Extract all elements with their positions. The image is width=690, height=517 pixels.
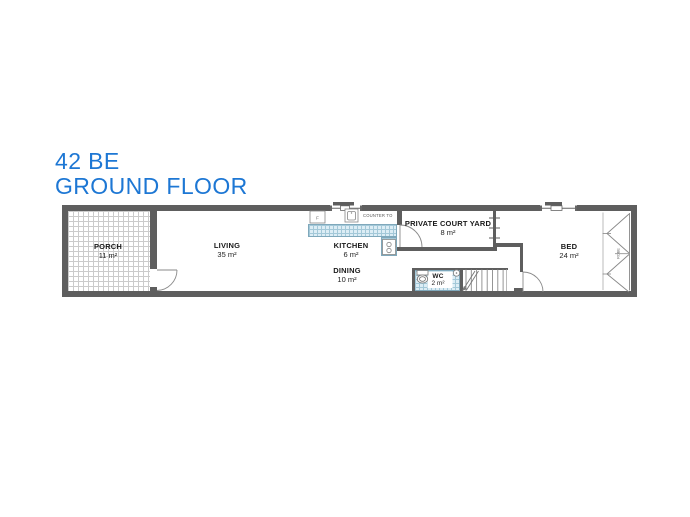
kitchen-counter-side [381,237,397,256]
kitchen-name: KITCHEN [334,241,369,250]
living-name: LIVING [214,241,240,250]
porch-name: PORCH [94,242,122,251]
fridge-label: F [316,216,319,221]
room-label-courtyard: PRIVATE COURT YARD 8 m² [405,219,491,237]
floor-plan: F COUNTER TO [62,205,637,297]
floor-plan-page: 42 BE GROUND FLOOR [0,0,690,517]
courtyard-name: PRIVATE COURT YARD [405,219,491,228]
living-area: 35 m² [214,250,240,259]
wc-area: 2 m² [432,280,445,287]
wall-bed-upper [493,243,523,247]
room-label-living: LIVING 35 m² [214,241,240,259]
title-line1: 42 BE [55,149,248,174]
wall-courtyard-right [493,211,496,243]
room-label-porch: PORCH 11 m² [94,242,122,260]
bed-name: BED [559,242,578,251]
robe-label: ROBE [617,248,621,259]
dining-area: 10 m² [333,275,360,284]
dining-name: DINING [333,266,360,275]
porch-door-icon [157,270,177,291]
wall-wc-right [460,268,463,291]
wall-stub-bed-door [514,288,523,291]
wc-name: WC [432,273,445,280]
room-label-kitchen: KITCHEN 6 m² [334,241,369,259]
bed-door-icon [523,272,543,292]
courtyard-area: 8 m² [405,228,491,237]
wall-courtyard-bottom [397,247,497,251]
wall-porch-living [150,211,157,269]
bed-window-icon [540,202,577,212]
bed-area: 24 m² [559,251,578,260]
staircase-icon [462,270,507,292]
kitchen-area: 6 m² [334,250,369,259]
wall-wc-left [412,268,415,291]
wall-bed-left [520,247,523,272]
fridge-icon: F [310,211,325,223]
room-label-wc: WC 2 m² [432,273,445,287]
title-line2: GROUND FLOOR [55,174,248,199]
room-label-dining: DINING 10 m² [333,266,360,284]
kitchen-counter-top [308,224,397,237]
room-label-bed: BED 24 m² [559,242,578,260]
porch-area: 11 m² [94,251,122,260]
wardrobe-icon: ROBE [603,213,630,293]
wall-stub-porch-door [150,287,157,291]
page-title: 42 BE GROUND FLOOR [55,149,248,199]
kitchen-window-icon [330,202,362,212]
kitchen-sink-icon [345,209,358,222]
wall-courtyard-left [397,211,402,225]
counter-top-label: COUNTER TO [363,213,393,218]
